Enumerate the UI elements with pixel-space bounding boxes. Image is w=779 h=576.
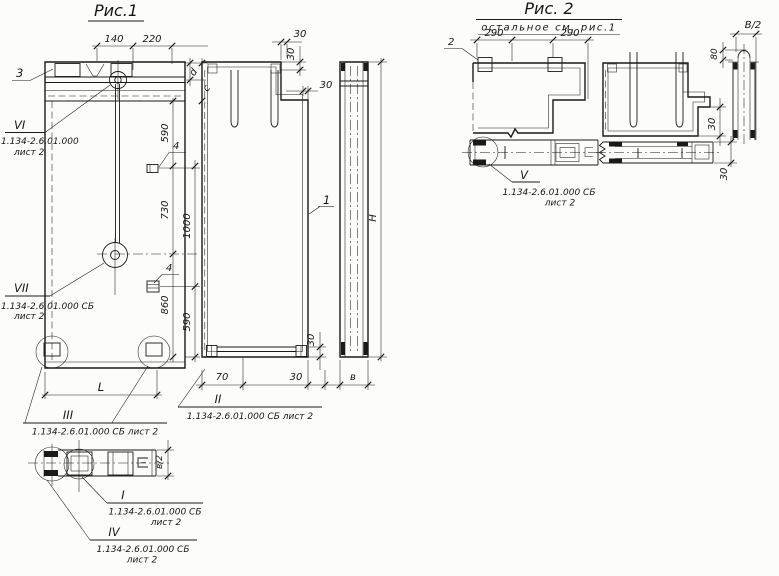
- callout-vii-doc: 1.134-2.6.01.000 СБ: [1, 302, 94, 312]
- clip-bracket: [147, 165, 158, 173]
- dim-1000: 1000: [182, 213, 193, 238]
- dim-590-bot: 590: [182, 312, 193, 331]
- notch: [86, 64, 104, 76]
- callout-v-sheet: лист 2: [544, 199, 576, 209]
- panel-outline: [473, 63, 585, 137]
- f1-callout-iii: III 1.134-2.6.01.000 СБ лист 2: [23, 366, 167, 438]
- clip-bracket: [147, 281, 159, 292]
- callout-1: 1: [323, 193, 330, 207]
- dim-730: 730: [160, 200, 171, 219]
- detail-circle: [36, 336, 68, 368]
- figure-2: Рис. 2 остальное см. рис.1 290 290 2: [444, 0, 762, 209]
- dim-30a: 30: [707, 118, 718, 131]
- loop-section: [146, 343, 162, 356]
- callout-iii-number: III: [63, 408, 74, 422]
- callout-vii-number: VII: [14, 281, 29, 295]
- dim-L: L: [98, 380, 104, 394]
- dim-290b: 290: [560, 28, 579, 39]
- f2-right-view: 30: [603, 52, 726, 146]
- dim-30b: 30: [719, 168, 730, 181]
- hook: [231, 70, 238, 127]
- f1-front-dims: 140 220 d c 590 730 860 1000 590 4 4: [42, 34, 213, 399]
- dim-c: c: [201, 83, 213, 94]
- dim-70: 70: [216, 372, 229, 383]
- f2-right-bar: 30: [596, 136, 737, 180]
- callout-vi-number: VI: [14, 118, 26, 132]
- callout-v-number: V: [520, 168, 529, 182]
- figure2-title: Рис. 2: [524, 0, 573, 18]
- edge-outline: [340, 62, 368, 357]
- lifting-loop-anchor: [55, 64, 80, 77]
- f1-callout-3: 3: [12, 66, 53, 81]
- f1-callout-i: I 1.134-2.6.01.000 СБ лист 2: [82, 477, 203, 528]
- callout-i-number: I: [121, 488, 125, 502]
- figure-1: Рис.1: [1, 1, 387, 566]
- clip: [585, 148, 593, 157]
- dim-80: 80: [710, 48, 720, 60]
- callout-ii-doc: 1.134-2.6.01.000 СБ лист 2: [187, 412, 314, 422]
- dim-590-top: 590: [160, 123, 171, 142]
- f2-section-bar: V 1.134-2.6.01.000 СБ лист 2: [462, 137, 604, 209]
- figure1-title: Рис.1: [94, 1, 138, 20]
- f1-edge-view: H: [340, 58, 387, 361]
- detail-circle: [138, 336, 170, 368]
- callout-iv-number: IV: [108, 525, 120, 539]
- dim-220: 220: [142, 34, 161, 45]
- callout-i-doc: 1.134-2.6.01.000 СБ: [109, 508, 202, 518]
- dim-30-bottom: 30: [290, 372, 303, 383]
- callout-iv-sheet: лист 2: [126, 556, 158, 566]
- dim-H: H: [368, 214, 379, 222]
- dim-b: в: [350, 372, 356, 383]
- panel-outline: [603, 63, 710, 136]
- technical-drawing: Рис.1: [0, 0, 779, 576]
- callout-i-sheet: лист 2: [150, 518, 182, 528]
- dim-290a: 290: [484, 28, 503, 39]
- f2-left-view: 290 290 2: [444, 28, 594, 137]
- drawing-sheet: Рис.1: [0, 0, 779, 576]
- dim-b-half: в/2: [155, 455, 165, 469]
- f1-section-dims: 30 30 30 30 70 30 в: [196, 29, 375, 390]
- callout-3: 3: [16, 66, 23, 80]
- callout-4a: 4: [173, 141, 179, 152]
- callout-iii-doc: 1.134-2.6.01.000 СБ лист 2: [32, 428, 159, 438]
- dim-30-step-t: 30: [286, 48, 297, 61]
- dim-d: d: [188, 66, 201, 78]
- dim-30-step-d: 30: [320, 80, 333, 91]
- dim-30-step-w: 30: [294, 29, 307, 40]
- f1-front-view: [36, 60, 200, 368]
- callout-vi-doc: 1.134-2.6.01.000: [1, 137, 79, 147]
- f1-callout-vii: VII 1.134-2.6.01.000 СБ лист 2: [1, 263, 104, 322]
- callout-v-doc: 1.134-2.6.01.000 СБ: [503, 188, 596, 198]
- lifting-loop-anchor: [478, 58, 492, 72]
- lifting-loop-anchor: [111, 64, 132, 77]
- dim-30-bottom-t: 30: [306, 334, 317, 347]
- dim-140: 140: [104, 34, 123, 45]
- dim-860: 860: [160, 295, 171, 314]
- callout-ii-number: II: [215, 392, 222, 406]
- callout-4b: 4: [166, 263, 172, 274]
- f1-section-view: 1: [202, 62, 334, 357]
- section-outline: [202, 62, 308, 357]
- dimension-ticks: [42, 31, 759, 479]
- hook: [271, 70, 278, 127]
- callout-2: 2: [448, 37, 454, 48]
- callout-iv-doc: 1.134-2.6.01.000 СБ: [97, 545, 190, 555]
- lifting-loop-anchor: [548, 58, 562, 72]
- callout-vi-sheet: лист 2: [13, 148, 45, 158]
- callout-vii-sheet: лист 2: [13, 312, 45, 322]
- dim-B-half: В/2: [745, 20, 762, 31]
